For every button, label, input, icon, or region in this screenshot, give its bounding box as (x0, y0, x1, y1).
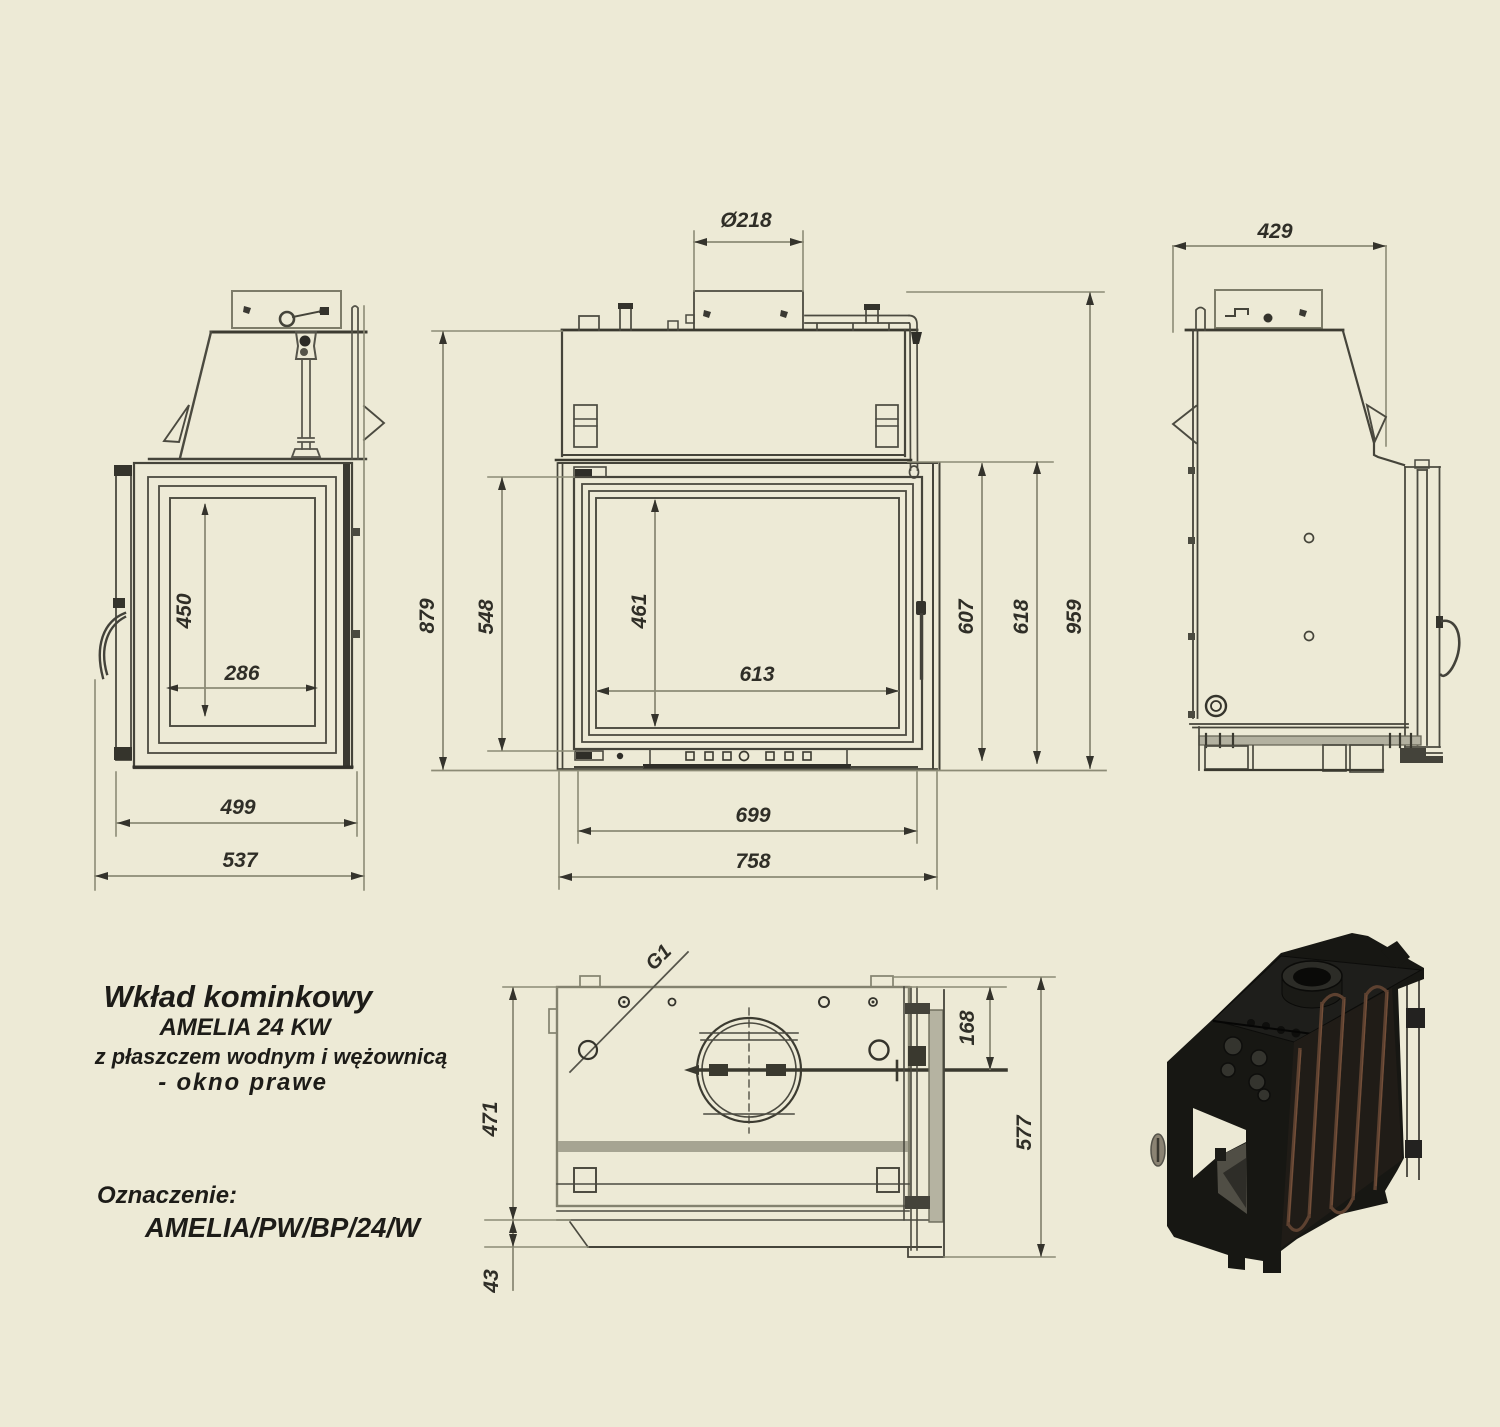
svg-text:AMELIA/PW/BP/24/W: AMELIA/PW/BP/24/W (144, 1212, 422, 1243)
svg-text:461: 461 (628, 593, 651, 629)
svg-text:43: 43 (480, 1269, 503, 1294)
svg-text:548: 548 (475, 599, 498, 634)
svg-text:471: 471 (479, 1101, 502, 1137)
svg-text:618: 618 (1010, 599, 1033, 634)
svg-text:607: 607 (955, 598, 978, 634)
svg-text:- okno prawe: - okno prawe (158, 1069, 328, 1096)
svg-text:Ø218: Ø218 (720, 209, 772, 232)
svg-text:577: 577 (1013, 1114, 1036, 1150)
svg-text:168: 168 (956, 1010, 979, 1045)
svg-text:z płaszczem wodnym i wężownicą: z płaszczem wodnym i wężownicą (94, 1044, 447, 1069)
svg-text:Wkład kominkowy: Wkład kominkowy (104, 979, 374, 1014)
svg-text:879: 879 (416, 598, 439, 633)
svg-text:537: 537 (222, 849, 258, 872)
svg-text:499: 499 (219, 796, 255, 819)
svg-text:450: 450 (173, 593, 196, 629)
svg-text:Oznaczenie:: Oznaczenie: (97, 1182, 237, 1209)
svg-text:613: 613 (739, 663, 774, 686)
svg-text:429: 429 (1256, 220, 1292, 243)
svg-text:286: 286 (223, 662, 259, 685)
svg-text:758: 758 (735, 850, 770, 873)
svg-text:699: 699 (735, 804, 770, 827)
svg-text:AMELIA 24 KW: AMELIA 24 KW (158, 1014, 332, 1041)
svg-text:959: 959 (1063, 599, 1086, 634)
